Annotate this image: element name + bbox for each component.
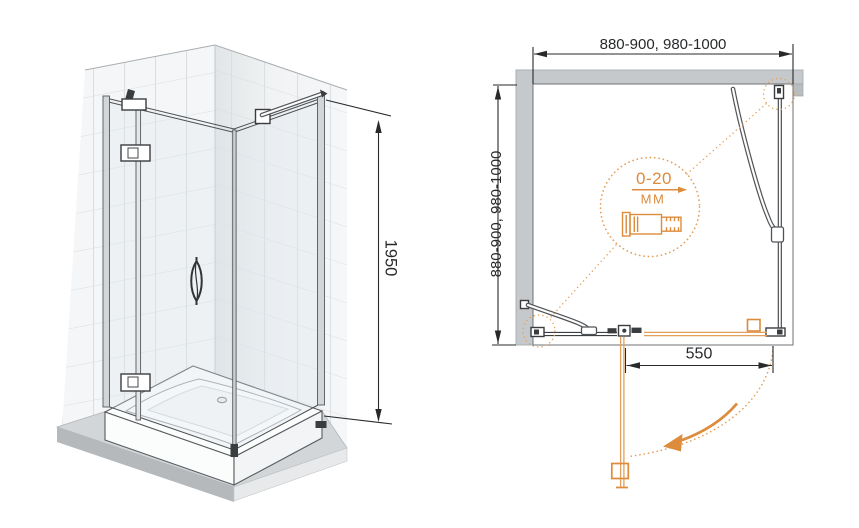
arrow-up bbox=[495, 87, 501, 100]
glass-clamp-upper bbox=[121, 145, 150, 161]
corner-fitting-pin bbox=[777, 330, 783, 335]
plan-walls bbox=[516, 70, 803, 345]
wall-bracket-top-right-pin bbox=[777, 88, 781, 94]
plan-view: 0-20 ММ 880-900, 980-1000 bbox=[488, 36, 803, 488]
support-foot-right bbox=[772, 227, 784, 242]
adjustment-range-label: 0-20 bbox=[636, 169, 672, 188]
adjustment-unit-label: ММ bbox=[641, 192, 666, 207]
support-foot-bottom bbox=[582, 327, 597, 335]
arrow-down bbox=[375, 409, 381, 422]
depth-dimension: 880-900, 980-1000 bbox=[488, 85, 517, 345]
corner-post-foot bbox=[231, 444, 239, 457]
drawing-canvas: 1950 bbox=[0, 0, 859, 528]
arrow-left bbox=[627, 362, 640, 368]
perspective-view: 1950 bbox=[57, 45, 400, 502]
height-label: 1950 bbox=[382, 240, 400, 277]
hinge-plate-right bbox=[632, 328, 642, 333]
side-glass bbox=[234, 99, 318, 450]
shower-enclosure-technical-drawing: 1950 bbox=[0, 0, 859, 528]
hinge-plate-left bbox=[608, 328, 617, 333]
enclosure-outline bbox=[533, 84, 793, 345]
wall-profile-left bbox=[103, 96, 110, 407]
door-width-label: 550 bbox=[686, 346, 713, 363]
wall-bracket-bottom-left-pin bbox=[534, 330, 539, 335]
arrow-up bbox=[375, 120, 381, 133]
wall-profile-right bbox=[318, 94, 325, 405]
door-swing-arrow bbox=[681, 404, 737, 441]
arrow-left bbox=[534, 51, 547, 57]
arrow-right bbox=[759, 362, 772, 368]
width-label: 880-900, 980-1000 bbox=[600, 36, 727, 53]
depth-label: 880-900, 980-1000 bbox=[488, 151, 505, 278]
corner-post bbox=[233, 130, 236, 450]
hinge-pivot bbox=[622, 329, 626, 333]
arrow-down bbox=[495, 331, 501, 344]
wall-profile-right-foot bbox=[316, 421, 327, 428]
door-swing-arc bbox=[629, 347, 773, 457]
wall-top bbox=[516, 70, 803, 84]
top-hinge-plate bbox=[122, 99, 146, 110]
door-open-lines bbox=[621, 337, 624, 487]
arrow-right bbox=[779, 51, 792, 57]
door-width-dimension: 550 bbox=[626, 346, 774, 374]
